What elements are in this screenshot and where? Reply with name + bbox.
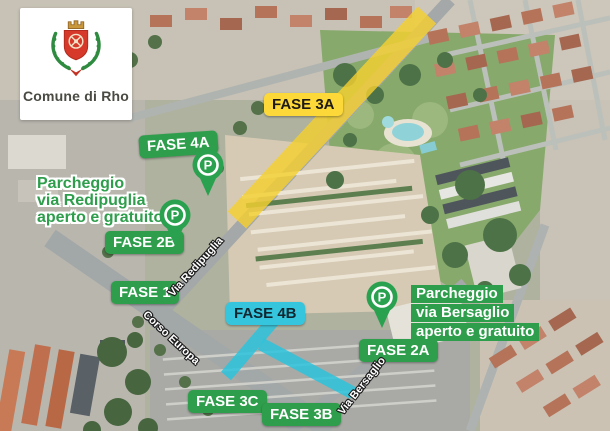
parking-pin-letter: P <box>171 208 180 223</box>
fase-4b-label: FASE 4B <box>226 302 305 325</box>
parking-pin-letter: P <box>378 290 387 305</box>
note-parcheggio-redipuglia: Parcheggio via Redipuglia aperto e gratu… <box>37 175 163 226</box>
parking-pin-letter: P <box>204 158 213 173</box>
fase-3b-label: FASE 3B <box>262 403 341 426</box>
note-bersaglio-line1: Parcheggio <box>411 285 503 303</box>
note-redipuglia-line2: via Redipuglia <box>37 192 163 209</box>
parking-pin-bersaglio: P <box>365 281 399 329</box>
parking-pin-redipuglia-2: P <box>158 199 192 247</box>
fase-3a-label: FASE 3A <box>264 93 343 116</box>
note-bersaglio-line3: aperto e gratuito <box>411 323 539 341</box>
fase-3c-label: FASE 3C <box>188 390 267 413</box>
parking-pin-icon: P <box>365 281 399 329</box>
logo-title: Comune di Rho <box>23 88 129 104</box>
rho-parking-map-graphic: Comune di Rho FASE 3A FASE 4A FASE 2B FA… <box>0 0 610 431</box>
fase-2a-label: FASE 2A <box>359 339 438 362</box>
street-label-via-bersaglio: Via Bersaglio <box>336 355 388 417</box>
comune-di-rho-crest-icon <box>41 14 111 86</box>
comune-di-rho-logo: Comune di Rho <box>20 8 132 120</box>
parking-pin-icon: P <box>158 199 192 247</box>
note-parcheggio-bersaglio: Parcheggio via Bersaglio aperto e gratui… <box>411 285 539 342</box>
note-redipuglia-line1: Parcheggio <box>37 175 163 192</box>
note-bersaglio-line2: via Bersaglio <box>411 304 514 322</box>
parking-pin-redipuglia-1: P <box>191 149 225 197</box>
parking-pin-icon: P <box>191 149 225 197</box>
street-label-corso-europa: Corso Europa <box>140 309 201 367</box>
note-redipuglia-line3: aperto e gratuito <box>37 209 163 226</box>
